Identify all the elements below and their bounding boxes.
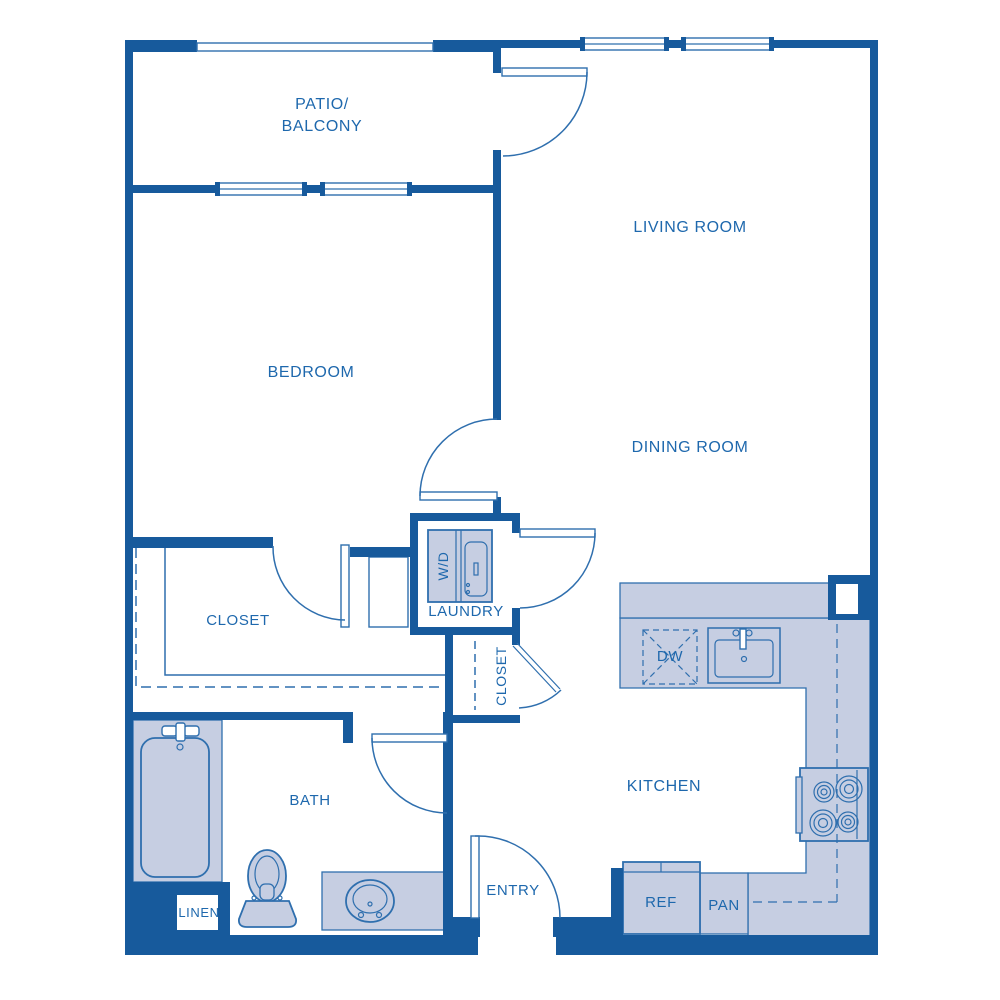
wall-segment <box>556 935 878 955</box>
range-stove <box>796 768 868 841</box>
breakfast-bar <box>620 583 830 618</box>
wall-segment <box>611 868 623 935</box>
wall-segment <box>445 715 520 723</box>
bathtub-area <box>133 720 222 882</box>
room-label-kitchen: KITCHEN <box>627 776 701 798</box>
laundry-door <box>520 529 595 608</box>
wall-segment <box>493 48 501 73</box>
patio-label-line1: PATIO/ <box>282 94 363 116</box>
pantry-label: PAN <box>708 895 740 917</box>
window-bedroom-right <box>320 182 412 196</box>
bedroom-closet-door <box>273 545 349 627</box>
room-label-laundry: LAUNDRY <box>428 601 504 623</box>
wall-segment <box>493 193 501 420</box>
bar-end-cabinet <box>836 584 858 614</box>
wall-segment <box>512 521 520 533</box>
wall-segment <box>343 712 353 743</box>
wall-segment <box>125 40 197 52</box>
room-label-entry: ENTRY <box>486 880 540 902</box>
washer-dryer-label: W/D <box>432 551 454 580</box>
dishwasher-label: DW <box>657 646 683 668</box>
toilet <box>239 850 296 927</box>
room-label-patio: PATIO/ BALCONY <box>282 94 363 138</box>
wall-segment <box>512 608 520 645</box>
wall-segment <box>125 935 478 955</box>
entry-closet-door <box>513 643 561 708</box>
wall-segment <box>410 513 418 635</box>
wall-segment <box>125 537 273 548</box>
toilet-base <box>239 901 296 927</box>
room-label-closet-entry: CLOSET <box>490 646 512 706</box>
faucet-stem <box>740 629 746 649</box>
bathtub <box>141 738 209 877</box>
window-bedroom-left <box>215 182 307 196</box>
window-living-right <box>681 37 774 51</box>
bathroom-vanity <box>322 872 447 930</box>
wall-segment <box>410 513 520 521</box>
wall-segment <box>553 917 612 937</box>
wall-segment <box>870 40 878 955</box>
hall-niche <box>369 557 408 627</box>
wall-segment <box>445 635 453 723</box>
toilet-flush <box>260 884 274 900</box>
bath-door <box>372 734 447 813</box>
room-label-linen: LINEN <box>178 902 219 924</box>
walls <box>125 40 878 955</box>
room-label-dining: DINING ROOM <box>632 437 749 459</box>
room-label-closet-bedroom: CLOSET <box>206 610 270 632</box>
floor-plan-canvas <box>0 0 1000 1000</box>
wall-segment <box>410 627 520 635</box>
patio-railing <box>197 43 433 51</box>
patio-door <box>502 68 587 156</box>
patio-label-line2: BALCONY <box>282 116 363 138</box>
floor-plan: PATIO/ BALCONY LIVING ROOM BEDROOM DININ… <box>0 0 1000 1000</box>
bedroom-door <box>420 419 497 500</box>
room-label-bedroom: BEDROOM <box>268 362 355 384</box>
refrigerator-label: REF <box>645 892 677 914</box>
wall-segment <box>125 40 133 955</box>
room-label-bath: BATH <box>289 790 330 812</box>
wall-segment <box>450 917 480 937</box>
stove-handle <box>796 777 802 833</box>
wall-segment <box>125 712 353 720</box>
room-label-living: LIVING ROOM <box>633 217 746 239</box>
wall-segment <box>350 547 410 557</box>
wall-segment <box>443 712 453 937</box>
wall-segment <box>125 185 501 193</box>
entry-door <box>471 836 560 918</box>
wall-segment <box>433 40 501 52</box>
window-living-left <box>580 37 669 51</box>
